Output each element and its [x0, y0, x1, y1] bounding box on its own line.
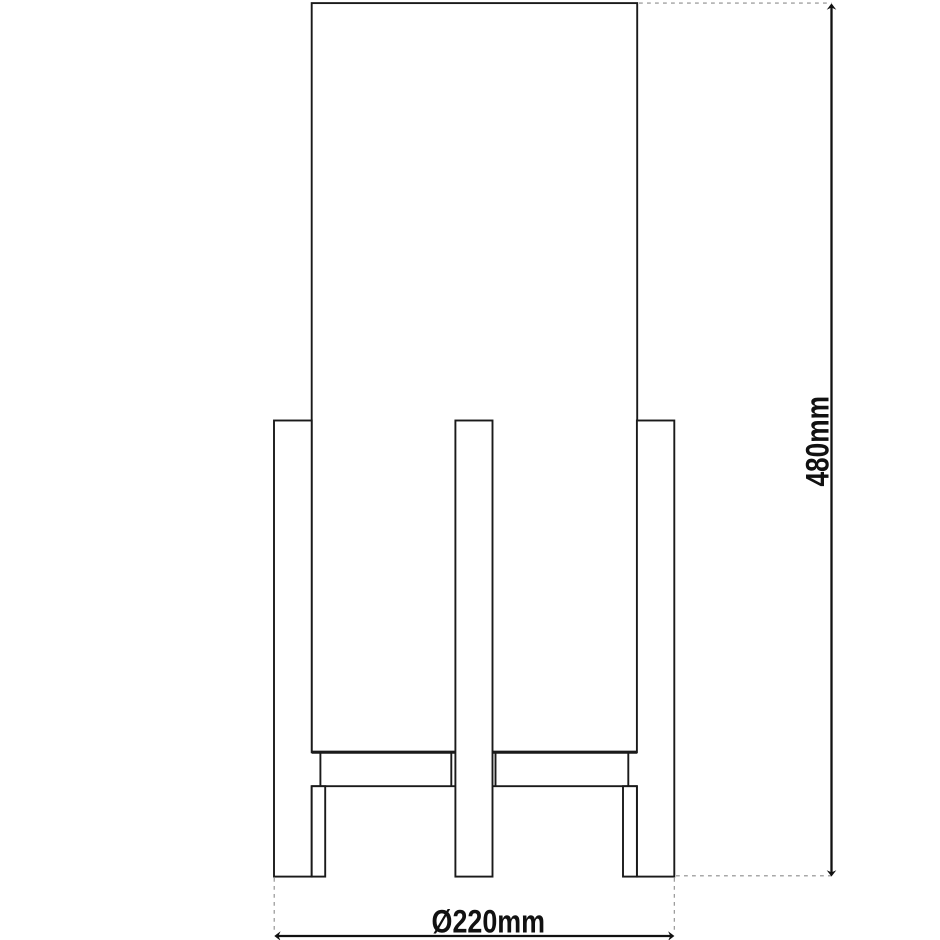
svg-text:Ø220mm: Ø220mm	[432, 904, 546, 940]
svg-text:480mm: 480mm	[799, 396, 835, 487]
